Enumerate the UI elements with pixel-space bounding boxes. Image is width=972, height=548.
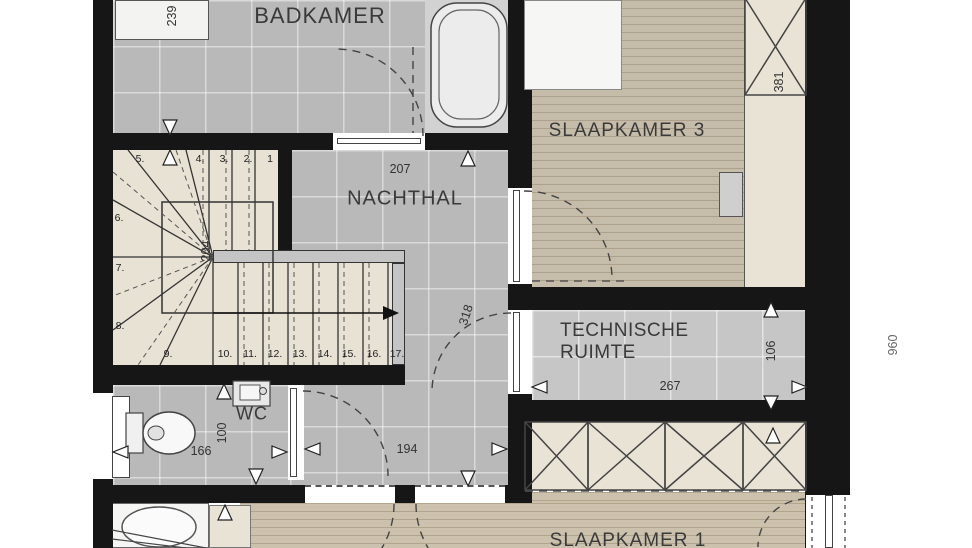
step-number-10: 10. — [218, 348, 233, 360]
stair-railing-horizontal — [213, 250, 405, 263]
dim-960: 960 — [886, 335, 900, 356]
bottom-left-floor-patch — [209, 505, 251, 548]
step-number-11: 11. — [243, 348, 257, 360]
step-number-13: 13. — [293, 348, 308, 360]
step-number-12: 12. — [268, 348, 283, 360]
step-number-16: 16. — [367, 348, 382, 360]
step-number-15: 15. — [342, 348, 357, 360]
technische-line2: RUIMTE — [560, 342, 689, 364]
step-number-3: 3. — [220, 153, 229, 165]
dim-239: 239 — [165, 6, 179, 27]
floor-plan: BADKAMER SLAAPKAMER 3 NACHTHAL TECHNISCH… — [0, 0, 972, 548]
dim-106: 106 — [764, 341, 778, 362]
wall-badkamer-bottom — [93, 133, 515, 150]
technische-ruimte-label: TECHNISCHE RUIMTE — [560, 320, 689, 364]
wc-door-leaf — [290, 388, 297, 477]
slaapkamer3-door-opening — [508, 188, 532, 284]
technische-door-leaf — [513, 312, 520, 392]
closet-strip — [744, 0, 808, 290]
slaapkamer3-label: SLAAPKAMER 3 — [549, 120, 706, 142]
step-number-17: 17. — [390, 348, 405, 360]
technische-line1: TECHNISCHE — [560, 320, 689, 342]
step-number-8: 8. — [116, 320, 125, 332]
wall-technische-bottom — [508, 400, 850, 422]
step-number-1: 1 — [267, 153, 273, 165]
dim-194: 194 — [397, 442, 418, 456]
slaapkamer1-door-opening-left — [305, 485, 395, 503]
dim-267: 267 — [660, 379, 681, 393]
wall-hall-bottom-stub — [395, 485, 415, 503]
wall-hall-bottom-right — [505, 485, 532, 503]
dim-204: 204 — [199, 241, 213, 262]
wc-window-opening — [93, 393, 113, 479]
wall-slaapkamer3-bottom — [508, 287, 850, 310]
slaapkamer1-window-frame — [825, 495, 833, 548]
bathtub-zone — [425, 0, 510, 135]
dim-381: 381 — [772, 72, 786, 93]
step-number-7: 7. — [116, 262, 125, 274]
outer-wall-right — [805, 0, 850, 548]
slaapkamer3-door-leaf — [513, 190, 520, 282]
wc-label: WC — [236, 404, 268, 425]
step-number-9: 9. — [164, 348, 173, 360]
dim-207: 207 — [390, 162, 411, 176]
bath-tub-bottom-room — [112, 503, 209, 548]
step-number-14: 14. — [318, 348, 333, 360]
badkamer-label: BADKAMER — [254, 3, 385, 29]
step-number-4: 4. — [196, 153, 205, 165]
dim-100: 100 — [215, 423, 229, 444]
step-number-2: 2. — [244, 153, 253, 165]
slaapkamer1-floor — [240, 503, 810, 548]
nachthal-label: NACHTHAL — [347, 188, 463, 211]
dim-166: 166 — [191, 444, 212, 458]
slaapkamer1-door-opening-right — [415, 485, 505, 503]
step-number-6: 6. — [115, 212, 124, 224]
wc-window-leaf — [112, 396, 130, 478]
radiator — [719, 172, 743, 217]
step-number-5: 5. — [136, 153, 145, 165]
wall-hall-bottom-left — [93, 485, 308, 503]
wall-stairs-bottom — [93, 365, 405, 385]
wc-floor — [113, 385, 290, 485]
bed — [524, 0, 622, 90]
shower-tray — [115, 0, 209, 40]
technische-door-opening — [508, 310, 532, 394]
wall-stair-stub — [278, 150, 292, 255]
slaapkamer1-label: SLAAPKAMER 1 — [550, 530, 707, 548]
badkamer-door-leaf — [337, 138, 421, 144]
wardrobe-strip — [525, 422, 807, 490]
